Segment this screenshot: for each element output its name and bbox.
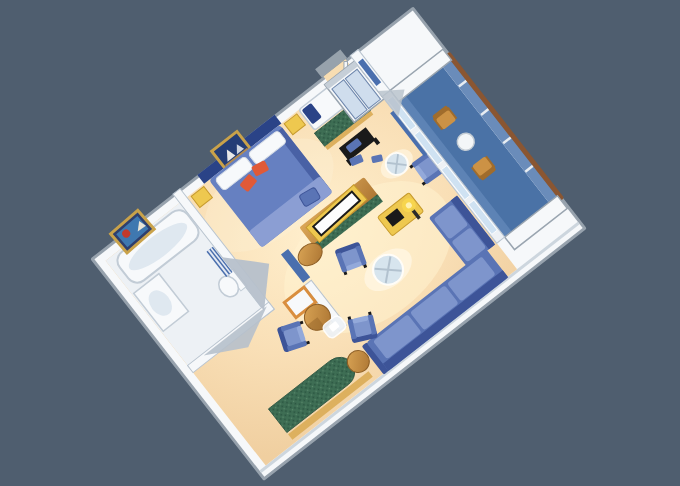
suite-floor-plan-screenshot [0,0,680,486]
floor-plan-canvas [0,0,680,486]
